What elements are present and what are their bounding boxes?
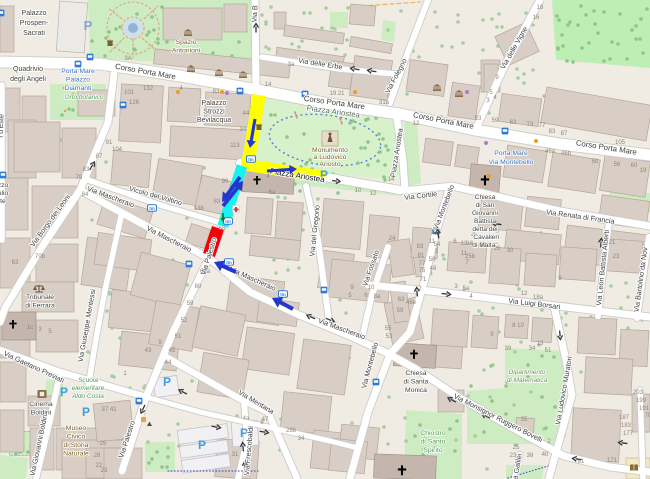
svg-text:di Santa: di Santa	[404, 379, 429, 386]
svg-text:Aldo Costa: Aldo Costa	[71, 393, 104, 400]
svg-text:31a: 31a	[379, 100, 390, 106]
svg-text:10: 10	[355, 188, 362, 194]
svg-text:Chiesa: Chiesa	[475, 194, 496, 201]
svg-text:187: 187	[619, 415, 630, 421]
svg-text:71: 71	[420, 277, 427, 283]
svg-text:203: 203	[633, 390, 644, 396]
svg-text:Giovanni: Giovanni	[472, 210, 499, 217]
svg-text:18: 18	[537, 5, 544, 11]
svg-text:zzo: zzo	[0, 182, 9, 189]
svg-text:60: 60	[195, 284, 202, 290]
svg-text:101: 101	[124, 90, 135, 96]
svg-text:10: 10	[368, 285, 375, 291]
svg-text:Strozzi: Strozzi	[203, 109, 225, 116]
svg-text:3a: 3a	[288, 62, 295, 68]
svg-text:87: 87	[96, 154, 103, 160]
svg-text:24: 24	[389, 236, 396, 242]
svg-text:56: 56	[614, 162, 621, 168]
svg-text:53: 53	[386, 334, 393, 340]
svg-text:di San: di San	[476, 202, 495, 209]
svg-text:8 10: 8 10	[512, 323, 524, 329]
svg-text:30: 30	[507, 248, 514, 254]
svg-text:38: 38	[527, 453, 534, 459]
svg-text:te: te	[0, 198, 6, 205]
svg-text:Porta Mare: Porta Mare	[494, 150, 528, 157]
svg-text:Museo: Museo	[66, 425, 87, 432]
svg-text:40: 40	[542, 452, 549, 458]
svg-text:39: 39	[505, 346, 512, 352]
svg-text:51: 51	[545, 348, 552, 354]
svg-text:87: 87	[561, 131, 568, 137]
svg-text:53: 53	[475, 116, 482, 122]
svg-text:34: 34	[298, 436, 305, 442]
svg-text:79: 79	[76, 175, 83, 181]
svg-text:51: 51	[175, 334, 182, 340]
svg-text:99: 99	[222, 179, 229, 185]
svg-text:Prosperi-: Prosperi-	[20, 20, 49, 27]
svg-text:12: 12	[370, 191, 377, 197]
svg-text:13: 13	[537, 341, 544, 347]
svg-text:11: 11	[461, 251, 468, 257]
svg-text:Via B: Via B	[250, 5, 260, 23]
svg-text:Battista: Battista	[474, 218, 496, 225]
svg-text:Ariosto: Ariosto	[319, 161, 340, 168]
svg-text:37 41: 37 41	[101, 407, 117, 413]
svg-text:P: P	[163, 375, 171, 389]
svg-text:Antonioni: Antonioni	[172, 48, 201, 55]
svg-text:3A: 3A	[124, 56, 131, 62]
svg-text:171: 171	[607, 458, 618, 464]
svg-text:P: P	[60, 385, 68, 399]
svg-text:13: 13	[461, 241, 468, 247]
svg-text:"Cavalieri: "Cavalieri	[471, 234, 500, 241]
svg-text:Dipartimento: Dipartimento	[509, 369, 546, 376]
svg-text:elementare: elementare	[72, 385, 105, 392]
svg-text:8a: 8a	[374, 294, 381, 300]
svg-text:43: 43	[145, 348, 152, 354]
svg-text:Chiostro: Chiostro	[420, 430, 446, 437]
svg-text:132: 132	[143, 86, 154, 92]
svg-text:19: 19	[640, 168, 647, 174]
svg-text:Quadrivio: Quadrivio	[13, 66, 43, 73]
svg-text:tm: tm	[280, 292, 286, 297]
svg-text:48: 48	[430, 266, 437, 272]
svg-text:I d'Este: I d'Este	[0, 114, 5, 138]
svg-text:126: 126	[129, 100, 140, 106]
svg-text:44: 44	[165, 360, 172, 366]
svg-text:84: 84	[82, 192, 89, 198]
svg-text:44: 44	[243, 111, 250, 117]
svg-text:55: 55	[385, 326, 392, 332]
svg-text:26: 26	[494, 246, 501, 252]
svg-text:83: 83	[417, 244, 424, 250]
svg-text:50: 50	[429, 257, 436, 263]
svg-text:83: 83	[549, 129, 556, 135]
svg-text:60: 60	[631, 163, 638, 169]
svg-text:113: 113	[230, 143, 240, 149]
svg-text:Monumento: Monumento	[312, 147, 348, 154]
svg-text:34: 34	[529, 346, 536, 352]
svg-text:68: 68	[219, 226, 226, 232]
svg-text:tm: tm	[248, 157, 254, 162]
svg-text:59: 59	[187, 301, 194, 307]
svg-text:63: 63	[398, 297, 405, 303]
svg-text:6a: 6a	[269, 190, 276, 196]
svg-text:46e: 46e	[406, 300, 417, 306]
svg-text:Scuola: Scuola	[78, 377, 98, 384]
svg-text:63: 63	[12, 260, 19, 266]
svg-text:191: 191	[639, 406, 650, 412]
svg-text:50: 50	[592, 159, 599, 165]
svg-text:63: 63	[510, 120, 517, 126]
svg-text:16: 16	[467, 241, 474, 247]
svg-text:Boldini: Boldini	[31, 410, 52, 417]
svg-text:25: 25	[513, 445, 520, 451]
svg-text:91: 91	[106, 140, 113, 146]
svg-text:199: 199	[636, 398, 647, 404]
svg-text:104: 104	[112, 147, 123, 153]
svg-text:tm: tm	[149, 206, 155, 211]
svg-text:P: P	[82, 405, 90, 419]
svg-text:59: 59	[492, 118, 499, 124]
svg-text:Spirito: Spirito	[423, 447, 442, 454]
svg-text:75: 75	[419, 268, 426, 274]
svg-text:Orto botanico: Orto botanico	[64, 94, 103, 101]
svg-text:83: 83	[214, 199, 221, 205]
svg-text:59: 59	[397, 308, 404, 314]
svg-text:177: 177	[623, 431, 634, 437]
svg-text:Palazzo: Palazzo	[202, 100, 227, 107]
svg-text:14: 14	[388, 177, 395, 183]
svg-text:22: 22	[480, 243, 487, 249]
svg-text:12: 12	[521, 291, 528, 297]
svg-text:4a: 4a	[243, 416, 250, 422]
svg-text:di Storia: di Storia	[64, 442, 89, 449]
svg-text:Diamanti: Diamanti	[65, 85, 92, 92]
svg-text:Porta Mare: Porta Mare	[61, 68, 95, 75]
svg-text:degli Angeli: degli Angeli	[10, 76, 46, 83]
svg-text:P: P	[198, 438, 206, 452]
svg-text:Via Montebello: Via Montebello	[489, 159, 534, 166]
svg-text:Cinema: Cinema	[29, 401, 53, 408]
svg-text:52: 52	[181, 318, 188, 324]
svg-text:54: 54	[434, 242, 441, 248]
svg-text:34: 34	[240, 127, 247, 133]
svg-text:28b: 28b	[286, 428, 297, 434]
svg-text:25: 25	[100, 441, 107, 447]
svg-text:83: 83	[213, 89, 220, 95]
svg-text:19 21: 19 21	[329, 91, 345, 97]
svg-text:12: 12	[413, 121, 420, 127]
svg-text:77: 77	[539, 123, 546, 129]
svg-text:35: 35	[521, 417, 528, 423]
svg-text:14: 14	[265, 82, 272, 88]
svg-text:81: 81	[418, 253, 425, 259]
svg-text:Monica: Monica	[405, 387, 427, 394]
svg-text:tm: tm	[225, 219, 231, 224]
svg-text:ulio: ulio	[0, 190, 9, 197]
svg-text:61a: 61a	[200, 269, 211, 275]
svg-text:Sacrati: Sacrati	[23, 30, 45, 37]
svg-text:73: 73	[527, 122, 534, 128]
svg-text:di Santo: di Santo	[421, 439, 446, 446]
svg-text:Naturale: Naturale	[63, 451, 89, 458]
svg-text:Chiesa: Chiesa	[405, 370, 426, 377]
svg-text:77: 77	[419, 261, 426, 267]
svg-text:1c: 1c	[27, 325, 33, 331]
svg-text:P: P	[84, 18, 93, 33]
svg-text:28: 28	[94, 453, 101, 459]
svg-text:61: 61	[578, 459, 585, 465]
svg-text:21: 21	[609, 240, 616, 246]
svg-text:Bevilacqua: Bevilacqua	[197, 117, 231, 124]
svg-text:Civico: Civico	[67, 434, 86, 441]
svg-text:di Ferrara: di Ferrara	[25, 303, 55, 310]
svg-text:23: 23	[101, 468, 108, 474]
svg-text:detta dei: detta dei	[472, 226, 498, 233]
svg-text:83: 83	[83, 167, 90, 173]
svg-text:5a: 5a	[463, 286, 470, 292]
svg-text:105: 105	[615, 140, 626, 146]
svg-text:46b: 46b	[561, 151, 572, 157]
svg-text:13: 13	[431, 230, 438, 236]
svg-text:Spazio: Spazio	[176, 39, 197, 46]
svg-text:Palazzo: Palazzo	[22, 10, 47, 17]
svg-text:16: 16	[533, 15, 540, 21]
svg-text:13b: 13b	[194, 206, 205, 212]
svg-text:183: 183	[621, 423, 632, 429]
svg-text:tm: tm	[226, 260, 232, 265]
svg-text:di Matematica: di Matematica	[507, 377, 548, 384]
svg-text:a Ludovico: a Ludovico	[314, 154, 347, 161]
svg-text:70b: 70b	[35, 254, 46, 260]
svg-text:31: 31	[232, 452, 239, 458]
svg-text:Tribunale: Tribunale	[26, 294, 54, 301]
svg-text:70: 70	[645, 413, 650, 419]
svg-text:Palazzo: Palazzo	[66, 77, 90, 84]
svg-text:18a: 18a	[533, 295, 544, 301]
svg-text:23: 23	[510, 453, 517, 459]
svg-text:45: 45	[169, 348, 176, 354]
svg-text:46a: 46a	[545, 149, 556, 155]
svg-text:23: 23	[613, 254, 620, 260]
